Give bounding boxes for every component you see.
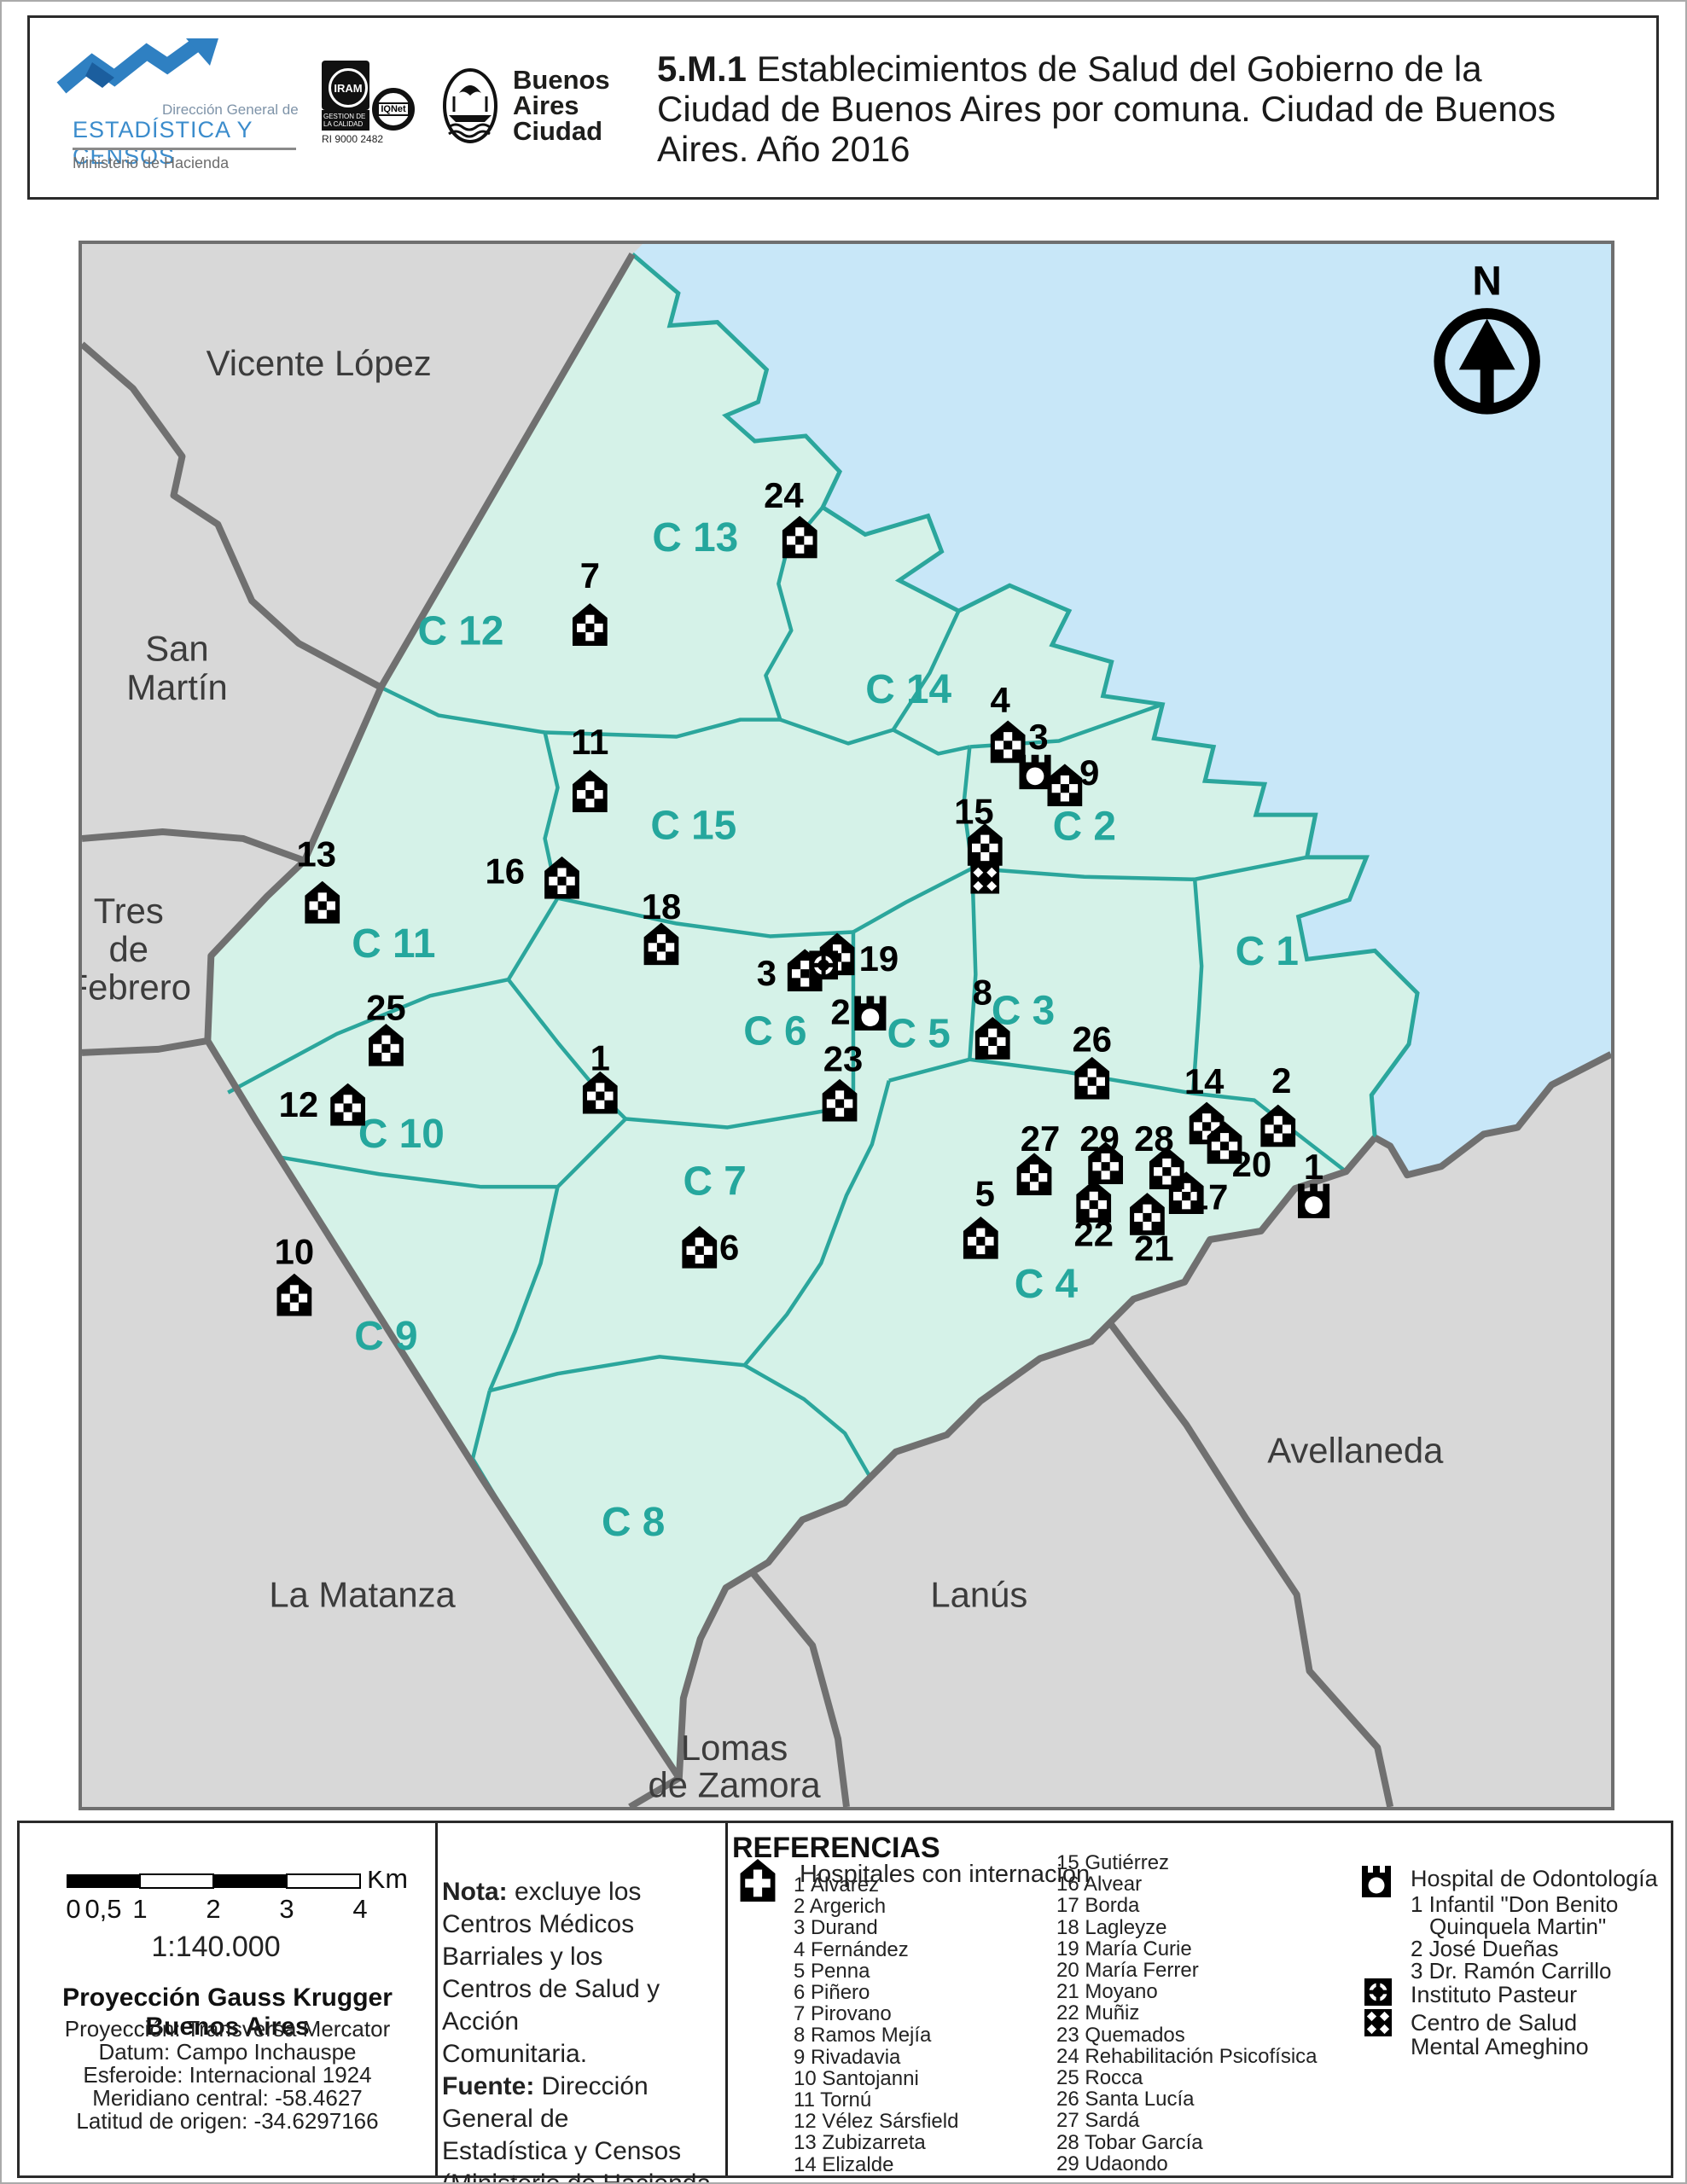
neighbor-label-lomas-de-zamora: de Zamora xyxy=(649,1765,822,1805)
hospital-marker-number-12: 12 xyxy=(279,1084,318,1124)
iram-logo: IRAM GESTION DE LA CALIDAD RI 9000 2482 xyxy=(322,61,371,145)
comuna-label-c12: C 12 xyxy=(418,609,504,654)
hospital-marker-number-8: 8 xyxy=(973,973,992,1013)
hospital-list-item: 23 Quemados xyxy=(1056,2024,1318,2046)
comuna-label-c2: C 2 xyxy=(1053,804,1116,850)
scale-bar: Km 00,51234 xyxy=(67,1871,442,1931)
hospital-list-item: 8 Ramos Mejía xyxy=(794,2024,958,2046)
nota-line: (Ministerio de Hacienda GCBA). xyxy=(442,2168,720,2184)
hospital-marker-number-22: 22 xyxy=(1073,1213,1113,1253)
nota-line: Estadística y Censos xyxy=(442,2135,720,2168)
hospital-list-item: 12 Vélez Sársfield xyxy=(794,2111,958,2132)
hospital-list-col1: 1 Álvarez2 Argerich3 Durand4 Fernández5 … xyxy=(794,1874,958,2175)
neighbor-label-la-matanza: La Matanza xyxy=(269,1575,456,1615)
hospital-marker-number-27: 27 xyxy=(1021,1118,1060,1159)
projection-line: Latitud de origen: -34.6297166 xyxy=(20,2110,435,2133)
hospital-marker-number-7: 7 xyxy=(580,555,600,595)
hospital-marker-number-25: 25 xyxy=(366,988,405,1028)
hospital-marker-number-28: 28 xyxy=(1134,1118,1173,1159)
hospital-list-item: 3 Durand xyxy=(794,1917,958,1938)
hospital-marker-number-4: 4 xyxy=(991,680,1011,720)
dgeyc-rule xyxy=(73,148,296,150)
hospital-list-item: 18 Lagleyze xyxy=(1056,1917,1318,1938)
odontologia-header: Hospital de Odontología xyxy=(1411,1866,1658,1892)
nota-line: Nota: excluye los xyxy=(442,1876,720,1908)
ameghino-legend-icon xyxy=(1364,2009,1392,2036)
odontologia-marker-icon-1 xyxy=(1298,1184,1329,1218)
hospital-marker-number-29: 29 xyxy=(1079,1118,1119,1159)
buenos-aires-logo-text: Buenos Aires Ciudad xyxy=(513,67,610,144)
hospital-marker-number-10: 10 xyxy=(275,1231,314,1271)
odontologia-marker-icon-3 xyxy=(1019,755,1050,789)
hospital-marker-number-15: 15 xyxy=(954,792,993,832)
hospital-marker-number-16: 16 xyxy=(486,851,525,891)
odontologia-marker-number-2: 2 xyxy=(830,992,850,1032)
title-line3: Aires. Año 2016 xyxy=(657,129,1638,169)
hospital-list-item: 11 Tornú xyxy=(794,2089,958,2111)
comuna-label-c8: C 8 xyxy=(602,1500,665,1545)
hospital-marker-number-1: 1 xyxy=(590,1037,610,1077)
pasteur-legend-icon xyxy=(1364,1978,1392,2006)
title-line1: Establecimientos de Salud del Gobierno d… xyxy=(757,49,1482,89)
odontologia-marker-number-1: 1 xyxy=(1304,1147,1323,1187)
comuna-label-c7: C 7 xyxy=(684,1159,747,1205)
iqnet-logo: IQNet xyxy=(372,88,415,131)
hospital-marker-number-13: 13 xyxy=(297,834,336,874)
hospital-list-item: 24 Rehabilitación Psicofísica xyxy=(1056,2046,1318,2067)
hospital-list-item: 22 Muñiz xyxy=(1056,2002,1318,2024)
footer-divider-2 xyxy=(725,1823,728,2175)
comuna-label-c10: C 10 xyxy=(358,1112,445,1157)
projection-line: Esferoide: Internacional 1924 xyxy=(20,2064,435,2087)
neighbor-label-tres-de-febrero: Febrero xyxy=(82,967,191,1008)
comuna-label-c6: C 6 xyxy=(743,1008,806,1054)
hospital-list-item: 1 Álvarez xyxy=(794,1874,958,1896)
neighbor-label-san-martin: San xyxy=(145,628,208,668)
map-canvas: Vicente LópezSanMartínTresdeFebreroLa Ma… xyxy=(79,241,1614,1810)
hospital-list-item: 29 Udaondo xyxy=(1056,2153,1318,2175)
nota-line: Fuente: Dirección General de xyxy=(442,2071,720,2135)
comuna-label-c5: C 5 xyxy=(887,1011,950,1056)
ameghino-label-line1: Centro de Salud xyxy=(1411,2011,1589,2035)
hospital-list-item: 28 Tobar García xyxy=(1056,2132,1318,2153)
dgeyc-line3: Ministerio de Hacienda xyxy=(73,154,229,172)
iram-name: IRAM xyxy=(329,68,368,107)
hospital-list-item: 13 Zubizarreta xyxy=(794,2132,958,2153)
comuna-label-c14: C 14 xyxy=(865,667,951,712)
hospital-marker-number-17: 17 xyxy=(1189,1177,1228,1217)
hospital-list-item: 26 Santa Lucía xyxy=(1056,2088,1318,2110)
hospital-list-item: 19 María Curie xyxy=(1056,1938,1318,1960)
odontologia-list-item: 3 Dr. Ramón Carrillo xyxy=(1411,1960,1618,1982)
hospital-list-item: 6 Piñero xyxy=(794,1982,958,2003)
pasteur-label: Instituto Pasteur xyxy=(1411,1982,1577,2008)
neighbor-label-lanus: Lanús xyxy=(930,1575,1027,1615)
map-svg: Vicente LópezSanMartínTresdeFebreroLa Ma… xyxy=(82,244,1611,1807)
nota-line: Centros Médicos Barriales y los xyxy=(442,1908,720,1973)
hospital-list-item: 14 Elizalde xyxy=(794,2154,958,2175)
scale-tick-3: 3 xyxy=(279,1894,294,1924)
hospital-list-item: 21 Moyano xyxy=(1056,1981,1318,2002)
title-line2: Ciudad de Buenos Aires por comuna. Ciuda… xyxy=(657,89,1638,129)
hospital-marker-number-5: 5 xyxy=(975,1174,995,1214)
hospital-marker-number-20: 20 xyxy=(1232,1144,1271,1184)
hospital-marker-number-21: 21 xyxy=(1134,1228,1173,1268)
neighbor-label-tres-de-febrero: de xyxy=(109,929,148,969)
ameghino-label: Centro de Salud Mental Ameghino xyxy=(1411,2011,1589,2059)
hospital-marker-number-18: 18 xyxy=(642,886,681,926)
comuna-label-c4: C 4 xyxy=(1015,1262,1079,1307)
hospital-marker-number-2: 2 xyxy=(1271,1060,1291,1101)
comuna-label-c1: C 1 xyxy=(1236,929,1299,974)
scale-tick-0: 0 xyxy=(67,1894,81,1924)
hospital-marker-number-14: 14 xyxy=(1184,1061,1225,1101)
dgeyc-arrow-icon xyxy=(51,38,307,98)
nota-line: Comunitaria. xyxy=(442,2038,720,2071)
odontologia-list: 1 Infantil "Don BenitoQuinquela Martin"2… xyxy=(1411,1893,1618,1982)
hospital-list-item: 27 Sardá xyxy=(1056,2110,1318,2131)
comuna-label-c15: C 15 xyxy=(650,804,736,849)
neighbor-label-avellaneda: Avellaneda xyxy=(1267,1430,1444,1470)
hospital-list-item: 17 Borda xyxy=(1056,1895,1318,1916)
hospital-list-item: 4 Fernández xyxy=(794,1939,958,1960)
neighbor-label-lomas-de-zamora: Lomas xyxy=(681,1728,788,1768)
hospital-list-item: 2 Argerich xyxy=(794,1896,958,1917)
comuna-label-c9: C 9 xyxy=(354,1314,417,1359)
buenos-aires-crest-icon xyxy=(442,67,498,144)
scale-ratio: 1:140.000 xyxy=(71,1931,361,1964)
footer-legend: Km 00,51234 1:140.000 Proyección Gauss K… xyxy=(17,1821,1673,2178)
scale-tick-0,5: 0,5 xyxy=(84,1894,121,1924)
hospital-list-item: 9 Rivadavia xyxy=(794,2047,958,2068)
neighbor-label-san-martin: Martín xyxy=(126,667,227,707)
ba-line3: Ciudad xyxy=(513,119,610,144)
odontologia-list-item: 1 Infantil "Don Benito xyxy=(1411,1893,1618,1915)
hospital-marker-number-3: 3 xyxy=(757,953,777,993)
hospital-marker-number-6: 6 xyxy=(719,1227,739,1267)
scale-unit: Km xyxy=(367,1871,408,1894)
hospital-list-item: 7 Pirovano xyxy=(794,2003,958,2024)
projection-details: Proyección: Transversa MercatorDatum: Ca… xyxy=(20,2018,435,2133)
hospital-marker-number-19: 19 xyxy=(859,938,899,979)
hospital-list-item: 10 Santojanni xyxy=(794,2068,958,2089)
hospital-legend-icon xyxy=(740,1859,776,1902)
neighbor-label-vicente-lopez: Vicente López xyxy=(207,343,432,383)
hospital-list-item: 15 Gutiérrez xyxy=(1056,1852,1318,1873)
comuna-label-c13: C 13 xyxy=(652,515,738,561)
ameghino-label-line2: Mental Ameghino xyxy=(1411,2035,1589,2059)
scale-tick-4: 4 xyxy=(352,1894,367,1924)
neighbor-label-tres-de-febrero: Tres xyxy=(94,891,164,931)
hospital-list-col2: 15 Gutiérrez16 Alvear17 Borda18 Lagleyze… xyxy=(1056,1852,1318,2175)
odontologia-list-item: 2 José Dueñas xyxy=(1411,1937,1618,1960)
ba-line1: Buenos xyxy=(513,67,610,93)
ameghino-marker-icon xyxy=(970,865,999,894)
hospital-marker-number-23: 23 xyxy=(823,1038,863,1078)
hospital-list-item: 25 Rocca xyxy=(1056,2067,1318,2088)
scale-tick-1: 1 xyxy=(132,1894,147,1924)
dgeyc-line1: Dirección General de xyxy=(162,102,299,119)
dgeyc-logo: Dirección General de ESTADÍSTICA Y CENSO… xyxy=(51,38,307,183)
iram-code: RI 9000 2482 xyxy=(322,133,371,145)
odontologia-marker-number-3: 3 xyxy=(1028,717,1048,757)
odontologia-marker-icon-2 xyxy=(854,996,886,1031)
hospital-list-item: 20 María Ferrer xyxy=(1056,1960,1318,1981)
ba-line2: Aires xyxy=(513,93,610,119)
comuna-label-c11: C 11 xyxy=(352,921,435,967)
hospital-marker-number-9: 9 xyxy=(1079,752,1099,793)
hospital-marker-number-24: 24 xyxy=(764,475,804,515)
iram-seal-icon: IRAM xyxy=(322,61,369,110)
header: Dirección General de ESTADÍSTICA Y CENSO… xyxy=(27,15,1659,200)
title-code: 5.M.1 xyxy=(657,49,747,89)
hospital-list-item: 5 Penna xyxy=(794,1960,958,1982)
projection-line: Meridiano central: -58.4627 xyxy=(20,2087,435,2110)
hospital-marker-number-11: 11 xyxy=(571,722,608,762)
page: Dirección General de ESTADÍSTICA Y CENSO… xyxy=(0,0,1687,2184)
odontologia-list-item: Quinquela Martin" xyxy=(1411,1915,1618,1937)
pasteur-marker-icon xyxy=(809,950,838,979)
hospital-marker-number-26: 26 xyxy=(1072,1019,1111,1059)
page-title: 5.M.1 Establecimientos de Salud del Gobi… xyxy=(657,49,1638,169)
scale-tick-2: 2 xyxy=(206,1894,220,1924)
north-label: N xyxy=(1472,259,1501,305)
nota-block: Nota: excluye losCentros Médicos Barrial… xyxy=(442,1876,720,2184)
projection-line: Datum: Campo Inchauspe xyxy=(20,2041,435,2064)
nota-line: Centros de Salud y Acción xyxy=(442,1973,720,2038)
iram-strip: GESTION DE LA CALIDAD xyxy=(322,110,369,131)
hospital-list-item: 16 Alvear xyxy=(1056,1873,1318,1895)
iqnet-label: IQNet xyxy=(377,102,409,116)
projection-line: Proyección: Transversa Mercator xyxy=(20,2018,435,2041)
odontologia-legend-icon xyxy=(1361,1862,1392,1898)
